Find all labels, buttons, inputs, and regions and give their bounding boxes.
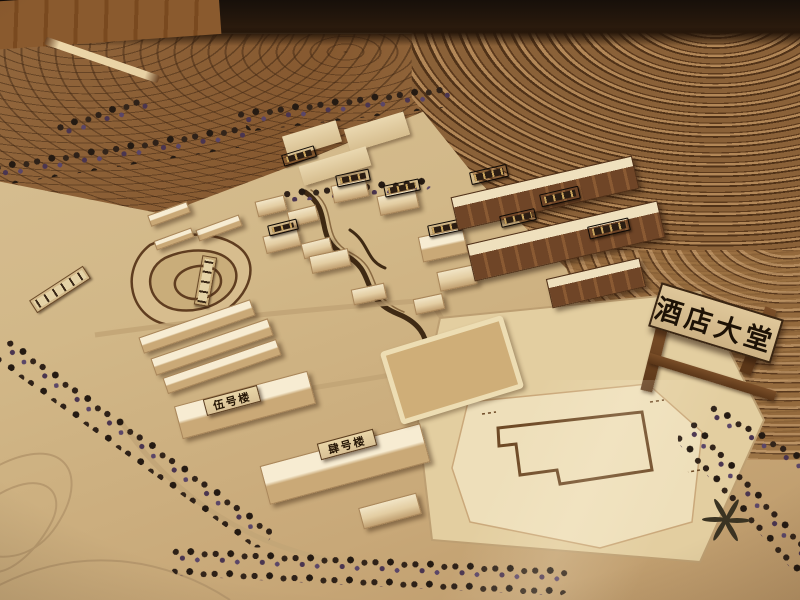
plywood-board	[452, 384, 702, 548]
palm-tree	[724, 518, 754, 548]
model-photo: 伍号楼 肆号楼 酒店大堂	[0, 0, 800, 600]
